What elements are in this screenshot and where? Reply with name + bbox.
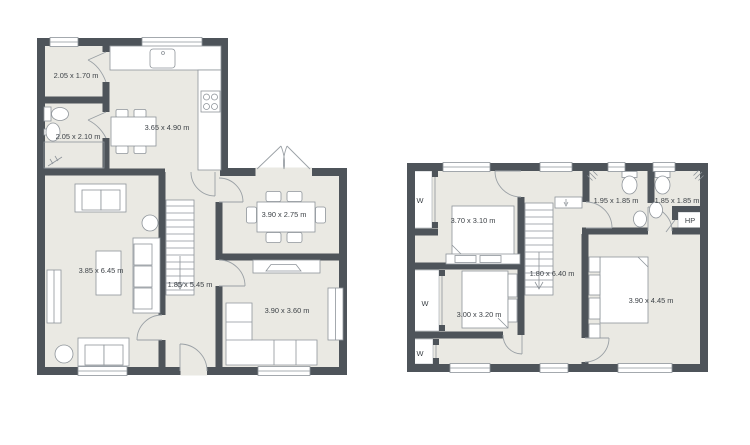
french-doors (257, 146, 310, 169)
bookshelf (47, 270, 61, 323)
window (50, 38, 78, 47)
window (653, 163, 675, 172)
window (443, 163, 490, 172)
room-dimension-label: 3.90 x 3.60 m (265, 306, 310, 315)
sofa (75, 184, 126, 212)
stove-icon (201, 91, 220, 112)
double-bed (446, 206, 520, 264)
floor-plan-page: 2.05 x 1.70 m 2.05 x 2.10 m 3.65 x 4.90 … (0, 0, 750, 445)
floor-plan-drawing: 2.05 x 1.70 m 2.05 x 2.10 m 3.65 x 4.90 … (0, 0, 750, 445)
window (540, 163, 572, 172)
side-table (55, 345, 73, 363)
room-label-wardrobe: W (422, 299, 429, 308)
room-dimension-label: 1.85 x 5.45 m (168, 280, 213, 289)
room-dimension-label: 3.70 x 3.10 m (451, 216, 496, 225)
room-label-wardrobe: W (417, 349, 424, 358)
room-label-hp: HP (685, 216, 695, 225)
window (142, 38, 202, 47)
wc-shower-floor (44, 142, 104, 168)
side-table (142, 215, 158, 231)
window (78, 367, 127, 376)
room-dimension-label: 3.65 x 4.90 m (145, 123, 190, 132)
double-bed (462, 271, 517, 328)
window (618, 364, 672, 373)
ground-floor-plan: 2.05 x 1.70 m 2.05 x 2.10 m 3.65 x 4.90 … (37, 38, 343, 376)
room-dimension-label: 2.05 x 1.70 m (54, 71, 99, 80)
window (540, 364, 568, 373)
room-dimension-label: 1.85 x 1.85 m (655, 196, 700, 205)
toilet-icon (655, 172, 670, 195)
toilet-icon (622, 172, 637, 195)
stair-landing (555, 197, 582, 208)
upper-floor-plan: 3.70 x 3.10 m 3.00 x 3.20 m 3.90 x 4.45 … (407, 163, 704, 373)
tv-stand (253, 260, 320, 273)
window (258, 367, 310, 376)
room-dimension-label: 3.00 x 3.20 m (457, 310, 502, 319)
window (450, 364, 490, 373)
window (608, 163, 625, 172)
sofa (133, 238, 160, 313)
room-dimension-label: 1.80 x 6.40 m (530, 269, 575, 278)
room-dimension-label: 2.05 x 2.10 m (56, 132, 101, 141)
sink-icon (634, 211, 647, 227)
room-label-wardrobe: W (417, 196, 424, 205)
front-door-opening (181, 367, 208, 376)
kitchen-sink-icon (150, 49, 175, 68)
toilet-icon (44, 107, 69, 121)
room-dimension-label: 3.90 x 4.45 m (629, 296, 674, 305)
shelf (328, 288, 343, 340)
room-dimension-label: 3.85 x 6.45 m (79, 266, 124, 275)
room-dimension-label: 1.95 x 1.85 m (594, 196, 639, 205)
sofa (78, 338, 129, 366)
room-dimension-label: 3.90 x 2.75 m (262, 210, 307, 219)
